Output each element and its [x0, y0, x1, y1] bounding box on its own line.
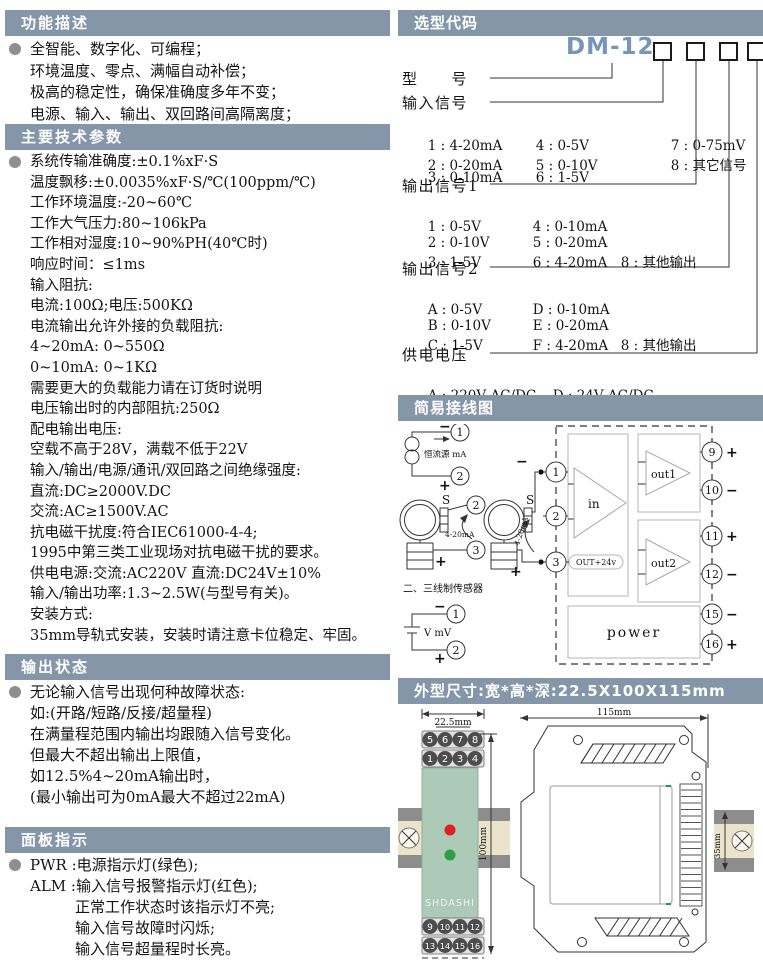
transmitter2-plus-sign: + [510, 564, 522, 580]
output-status-list: 无论输入信号出现何种故障状态: 如:(开路/短路/反接/超量程) 在满量程范围内… [0, 682, 392, 808]
aux-supply-block: OUT+24v [569, 555, 623, 569]
arrowhead-icon [700, 715, 708, 721]
text-line: 系统传输准确度:±0.1%xF·S [0, 152, 392, 173]
alm-led-green [445, 850, 456, 861]
panel-list: PWR :电源指示灯(绿色); ALM :输入信号报警指示灯(红色); 正常工作… [0, 855, 392, 960]
output-terminals: 9 10 11 12 15 16 + − + − − + [700, 442, 738, 654]
terminal-5-number: 5 [427, 735, 433, 746]
datasheet-page: { "left": { "function": { "title": "功能描述… [0, 0, 763, 963]
input-signal-label: 输入信号 [402, 92, 468, 113]
text-line: 电流输出允许外接的负载阻抗: [0, 317, 392, 338]
text-line: 输入/输出功率:1.3~2.5W(与型号有关)。 [0, 584, 392, 605]
depth-dimension-label: 115mm [597, 708, 632, 718]
text-line: 4~20mA: 0~550Ω [0, 337, 392, 358]
terminal-9-sign: + [726, 445, 738, 461]
s-terminal-label: S [442, 493, 450, 507]
terminal-9-number: 9 [427, 923, 433, 933]
text-line: 温度飘移:±0.0035%xF·S/℃(100ppm/℃) [0, 173, 392, 194]
terminal-11-number: 11 [705, 530, 719, 543]
function-list: 全智能、数字化、可编程； 环境温度、零点、满幅自动补偿； 极高的稳定性，确保准确… [0, 39, 392, 125]
option-cell: 8 : 其它信号 [671, 154, 747, 174]
text-line: 全智能、数字化、可编程； [0, 39, 392, 61]
transmitter1-terminal-2-number: 2 [473, 499, 480, 512]
text-line: (最小输出可为0mA最大不超过22mA) [0, 787, 392, 808]
terminal-2-number: 2 [553, 510, 560, 523]
text-line: 输入/输出/电源/通讯/双回路之间绝缘强度: [0, 461, 392, 482]
transmitter-1: S 2 3 4-20mA + [400, 493, 485, 570]
bullet-icon [9, 859, 21, 871]
battery-plus-sign: + [434, 651, 446, 667]
loop1-label: 4-20mA [445, 530, 475, 539]
terminal-11-sign: + [726, 529, 738, 545]
bullet-icon [9, 686, 21, 698]
section-header-dimensions: 外型尺寸:宽*高*深:22.5X100X115mm [398, 678, 763, 704]
terminal-3-number: 3 [553, 556, 560, 569]
terminal-16-sign: + [726, 637, 738, 653]
out1-label: out1 [651, 468, 676, 481]
code-box-2 [686, 42, 705, 61]
text-line: 输入信号故障时闪烁; [0, 918, 392, 939]
terminal-15-sign: − [726, 607, 738, 623]
text-line: 配电输出电压: [0, 420, 392, 441]
code-box-1 [653, 42, 672, 61]
section-header-output-status: 输出状态 [5, 654, 390, 680]
option-cell: F : 4-20mA [533, 338, 621, 354]
height-dimension-label: 100mm [479, 826, 489, 861]
code-box-4 [747, 42, 763, 61]
brand-label: SHDASHI [425, 898, 475, 909]
text-line: 工作相对湿度:10~90%PH(40℃时) [0, 234, 392, 255]
junction-dot [538, 469, 543, 474]
junction-dot [538, 559, 543, 564]
terminal-15-number: 15 [705, 608, 719, 621]
text-line: 1995中第三类工业现场对抗电磁干扰的要求。 [0, 543, 392, 564]
terminal-16-number: 16 [470, 942, 480, 951]
terminal-9-number: 9 [709, 446, 716, 459]
terminal-12-number: 12 [705, 568, 719, 581]
terminal-10-number: 10 [440, 923, 450, 932]
section-header-function: 功能描述 [5, 10, 390, 36]
current-arrow-icon [443, 436, 450, 442]
mount-hole [692, 772, 700, 780]
wiring-diagram: in OUT+24v out1 out2 power [398, 424, 763, 672]
text-line: 空载不高于28V，满载不低于22V [0, 440, 392, 461]
terminal-11-number: 11 [455, 923, 465, 932]
current-source-circuit: − 恒流源 mA + 1 2 [405, 424, 469, 494]
source-label: 恒流源 mA [424, 449, 467, 460]
text-line: 环境温度、零点、满幅自动补偿； [0, 61, 392, 83]
battery-minus-sign: − [434, 599, 446, 615]
output-signal-2-label: 输出信号2 [402, 258, 479, 279]
terminal-1-number: 1 [427, 754, 433, 765]
model-connector [490, 63, 612, 78]
text-line: ALM :输入信号报警指示灯(红色); [0, 876, 392, 897]
terminal-15-number: 15 [455, 942, 465, 951]
in-label: in [588, 497, 600, 511]
battery-label: V mV [423, 628, 452, 639]
loop-arrow-icon [460, 514, 468, 523]
text-line: 如12.5%4~20mA输出时， [0, 766, 392, 787]
terminal-8-number: 8 [472, 735, 478, 746]
text-line: 但最大不超出输出上限值， [0, 745, 392, 766]
mount-hole [680, 938, 689, 947]
mount-hole [574, 736, 583, 745]
module-front-view: 22.5mm 5 6 7 8 1 2 3 4 SHDASHI 9 10 [422, 709, 497, 958]
text-line: 安装方式: [0, 605, 392, 626]
transmitter-2: S − + 4-20mA [484, 454, 538, 580]
text-line: 供电电源:交流:AC220V 直流:DC24V±10% [0, 564, 392, 585]
text-line: 电流:100Ω;电压:500KΩ [0, 296, 392, 317]
power-block: power [568, 606, 700, 658]
supply-voltage-label: 供电电压 [402, 344, 468, 365]
din-rail-side: 35mm [713, 810, 754, 872]
text-line: 正常工作状态时该指示灯不亮; [0, 897, 392, 918]
right-column: 选型代码 DM-12- 型 号 输入信号 1 : 4-20mA4 : 0-5V7… [398, 0, 763, 963]
terminal-7-number: 7 [457, 735, 463, 746]
mount-hole [578, 938, 587, 947]
terminal-13-number: 13 [425, 942, 435, 951]
text-line: 电压输出时的内部阻抗:250Ω [0, 399, 392, 420]
battery-terminal-2-number: 2 [453, 644, 460, 657]
arrowhead-icon [477, 711, 484, 717]
bullet-icon [9, 156, 21, 168]
text-line: 工作环境温度:-20~60℃ [0, 193, 392, 214]
model-label: 型 号 [402, 68, 468, 89]
section-header-wiring: 简易接线图 [398, 395, 763, 421]
option-cell: 6 : 1-5V [536, 170, 671, 186]
in-amplifier-icon [574, 468, 626, 538]
text-line: 电源、输入、输出、双回路间高隔离度； [0, 104, 392, 126]
module-body [422, 768, 478, 918]
option-cell: 8 : 其他输出 [621, 334, 697, 354]
terminal-12-sign: − [726, 567, 738, 583]
text-line: 工作大气压力:80~106kPa [0, 214, 392, 235]
terminal-10-sign: − [726, 483, 738, 499]
input-block: in [568, 434, 628, 596]
option-cell: 6 : 4-20mA [533, 255, 621, 271]
aux-label: OUT+24v [576, 558, 617, 567]
transmitter2-minus-sign: − [516, 454, 528, 470]
mount-hole [692, 909, 698, 915]
text-line: 抗电磁干扰度:符合IEC61000-4-4; [0, 523, 392, 544]
terminal-4-number: 4 [472, 754, 478, 765]
bullet-icon [9, 43, 21, 55]
text-line: 0~10mA: 0~1KΩ [0, 358, 392, 379]
terminal-6-number: 6 [442, 735, 448, 746]
input-terminals: 1 2 3 [538, 462, 569, 572]
source-minus-sign: − [439, 424, 451, 435]
text-line: 响应时间：≤1ms [0, 255, 392, 276]
module-side-view: 115mm [520, 708, 708, 952]
pwr-led-red [445, 825, 456, 836]
terminal-3-number: 3 [457, 754, 463, 765]
text-line: 极高的稳定性，确保准确度多年不变； [0, 82, 392, 104]
terminal-10-number: 10 [705, 484, 719, 497]
text-line: 35mm导轨式安装，安装时请注意卡位稳定、牢固。 [0, 626, 392, 647]
dimension-drawing: 22.5mm 5 6 7 8 1 2 3 4 SHDASHI 9 10 [398, 706, 763, 963]
terminal-14-number: 14 [440, 942, 450, 951]
text-line: 直流:DC≥2000V.DC [0, 482, 392, 503]
text-line: 需要更大的负载能力请在订货时说明 [0, 379, 392, 400]
terminal-1-number: 1 [553, 466, 560, 479]
source-terminal-2-number: 2 [457, 470, 464, 483]
terminal-12-number: 12 [470, 923, 480, 932]
arrowhead-icon [422, 711, 429, 717]
power-label: power [607, 625, 661, 641]
text-line: 无论输入信号出现何种故障状态: [0, 682, 392, 703]
section-header-parameters: 主要技术参数 [5, 124, 390, 150]
transmitter1-plus-sign: + [435, 554, 447, 570]
rail-dimension-label: 35mm [713, 833, 722, 859]
text-line: 输入阻抗: [0, 276, 392, 297]
selection-code-diagram: DM-12- 型 号 输入信号 1 : 4-20mA4 : 0-5V7 : 0-… [398, 38, 763, 394]
terminal-16-number: 16 [705, 638, 719, 651]
text-line: 如:(开路/短路/反接/超量程) [0, 703, 392, 724]
arrowhead-icon [488, 946, 494, 954]
terminal-2-number: 2 [442, 754, 448, 765]
input-connector [490, 61, 663, 102]
sensor-note: 二、三线制传感器 [403, 582, 483, 595]
option-cell: 8 : 其他输出 [621, 251, 697, 271]
output1-block: out1 [638, 434, 700, 512]
text-line: PWR :电源指示灯(绿色); [0, 855, 392, 876]
battery-circuit: − + V mV 1 2 [404, 599, 465, 667]
arrowhead-icon [488, 734, 494, 742]
model-number-prefix: DM-12- [566, 34, 665, 60]
code-box-3 [719, 42, 738, 61]
left-column: 功能描述 全智能、数字化、可编程； 环境温度、零点、满幅自动补偿； 极高的稳定性… [0, 0, 392, 963]
battery-terminal-1-number: 1 [453, 608, 460, 621]
text-line: 在满量程范围内输出均跟随入信号变化。 [0, 724, 392, 745]
output2-block: out2 [638, 520, 700, 602]
text-line: 交流:AC≥1500V.AC [0, 502, 392, 523]
section-header-selection: 选型代码 [398, 10, 763, 36]
source-plus-sign: + [439, 478, 451, 494]
out2-label: out2 [651, 557, 676, 570]
text-line: 输入信号超量程时长亮。 [0, 939, 392, 960]
s-terminal-label: S [526, 493, 534, 507]
arrowhead-icon [520, 715, 528, 721]
output-signal-1-label: 输出信号1 [402, 175, 479, 196]
section-header-panel: 面板指示 [5, 827, 390, 853]
mount-hole [680, 736, 689, 745]
source-terminal-1-number: 1 [457, 426, 464, 439]
parameters-list: 系统传输准确度:±0.1%xF·S 温度飘移:±0.0035%xF·S/℃(10… [0, 152, 392, 646]
transmitter1-terminal-3-number: 3 [473, 544, 480, 557]
